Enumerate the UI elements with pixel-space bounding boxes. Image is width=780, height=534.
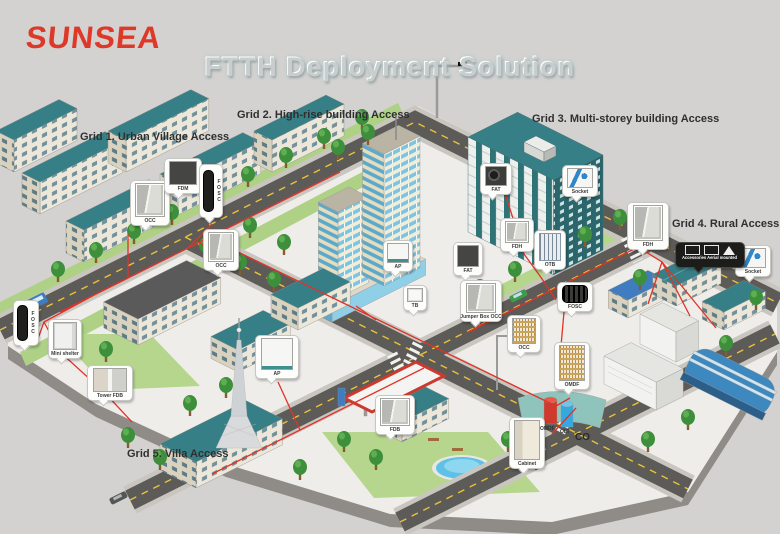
bench (452, 448, 463, 451)
callout-cabinet-co: Cabinet (509, 417, 545, 469)
callout-tb: TB (403, 285, 427, 311)
suspension-hook-icon (723, 246, 735, 255)
callout-tower-fdb: Tower FDB (87, 365, 133, 401)
fdm-device-icon (169, 161, 197, 185)
aerial-accessory-icons (685, 245, 735, 255)
grid2-label: Grid 2. High-rise building Access (237, 109, 410, 121)
occ-rack-icon (512, 318, 536, 344)
callout-occ-crossroad: OCC (203, 229, 239, 271)
fdh-cabinet-icon (505, 221, 529, 243)
fdh-cabinet-icon (633, 205, 664, 241)
grid3-label: Grid 3. Multi-storey building Access (532, 113, 719, 125)
olt-cylinder-label: OLT (560, 429, 570, 435)
fat-device-icon (485, 166, 508, 186)
sunsea-logo: SUNSEA (24, 20, 163, 56)
callout-fdh-rural: FDH (627, 202, 669, 250)
clamp-icon (704, 245, 719, 255)
callout-fdh-multi-storey: FDH (500, 218, 534, 252)
callout-fdm: FDM (164, 158, 202, 194)
co-label: CO (575, 432, 590, 443)
omdf-cylinder-label: OMDF (540, 426, 555, 432)
callout-fdb-villa: FDB (375, 395, 415, 435)
outdoor-cabinet-icon (514, 420, 540, 460)
callout-socket-multi-storey: Socket (562, 165, 598, 197)
street-cabinet-icon (135, 183, 164, 217)
street-cabinet-icon (466, 283, 497, 313)
callout-ap-villa: AP (255, 335, 299, 379)
splice-closure-icon (203, 170, 214, 212)
mini-shelter-icon (53, 322, 77, 350)
tensioner-icon (685, 245, 700, 255)
otb-device-icon (539, 233, 562, 261)
callout-fat-high-rise: FAT (453, 242, 483, 276)
optical-socket-icon (567, 168, 593, 188)
fat-device-icon (457, 245, 478, 267)
callout-mini-shelter: Mini shelter (48, 319, 82, 359)
callout-occ-central: OCC (507, 315, 541, 353)
grid4-label: Grid 4. Rural Access (672, 218, 779, 230)
street-cabinet-icon (208, 232, 234, 262)
tower-fdb-icon (93, 368, 127, 392)
callout-otb: OTB (534, 230, 566, 270)
callout-fosc-left: FOSC (13, 300, 39, 346)
ftth-deployment-diagram: SUNSEA FTTH Deployment Solution Grid 1. … (0, 0, 780, 534)
terminal-box-icon (407, 288, 423, 302)
bench (428, 438, 439, 441)
grid5-label: Grid 5. Villa Access (127, 448, 229, 460)
callout-fosc-central: FOSC (557, 282, 593, 312)
callout-jumper-box-occ: Jumper Box OCC (460, 280, 502, 322)
access-point-icon (387, 243, 408, 263)
callout-omdf: OMDF (554, 342, 590, 390)
fdb-cabinet-icon (380, 398, 409, 426)
splice-closure-icon (562, 285, 588, 303)
access-point-icon (261, 338, 293, 370)
splice-closure-icon (17, 305, 28, 340)
grid1-label: Grid 1. Urban Village Access (80, 131, 229, 143)
page-title: FTTH Deployment Solution (205, 52, 575, 83)
callout-fat-multi-storey: FAT (480, 163, 512, 195)
callout-accessories-aerial: Accessories Aerial mounted (675, 242, 745, 268)
omdf-rack-icon (559, 345, 585, 381)
callout-fosc-urban: FOSC (199, 164, 223, 218)
callout-ap-high-rise: AP (383, 240, 413, 272)
